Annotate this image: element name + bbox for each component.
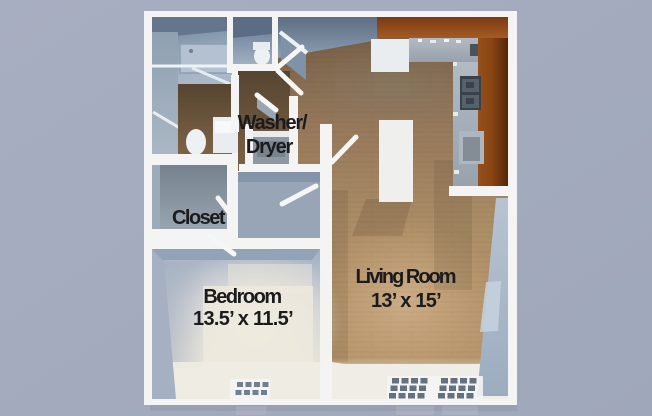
svg-text:13.5’ x 11.5’: 13.5’ x 11.5’ — [193, 308, 293, 330]
svg-text:Bedroom: Bedroom — [203, 286, 281, 308]
svg-text:Closet: Closet — [172, 207, 226, 229]
svg-text:Washer/: Washer/ — [238, 112, 308, 134]
svg-text:Dryer: Dryer — [246, 136, 294, 158]
svg-text:13’ x 15’: 13’ x 15’ — [371, 290, 441, 312]
svg-text:Living Room: Living Room — [355, 266, 455, 288]
